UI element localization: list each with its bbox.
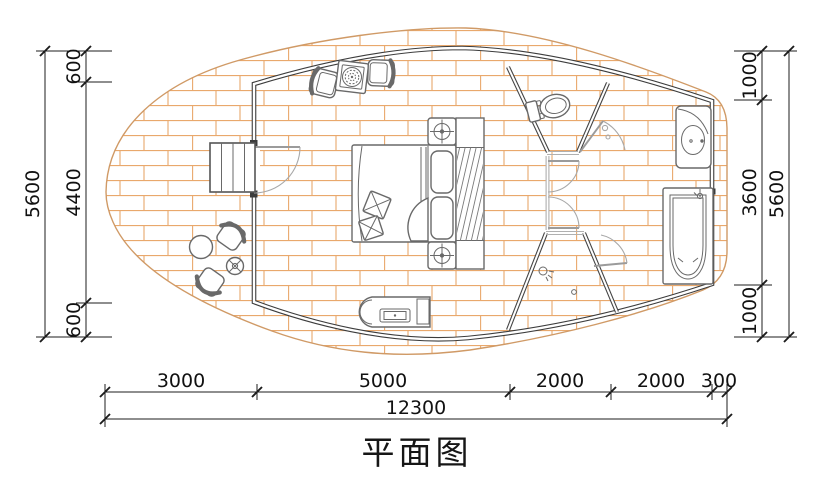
armchair-right xyxy=(368,60,395,87)
dim-label: 2000 xyxy=(637,370,685,392)
dim-label: 5000 xyxy=(359,370,407,392)
plan-title: 平面图 xyxy=(362,433,473,472)
dim-label: 3000 xyxy=(157,370,205,392)
dim-label: 600 xyxy=(63,302,85,338)
dim-label: 1000 xyxy=(739,51,761,99)
dim-label-overall: 5600 xyxy=(22,170,44,218)
bathtub xyxy=(663,188,713,284)
dim-label: 600 xyxy=(63,48,85,84)
dim-label: 4400 xyxy=(63,168,85,216)
sink-vanity xyxy=(676,106,711,168)
dim-label-overall: 5600 xyxy=(766,170,788,218)
pillow xyxy=(431,151,453,193)
dim-label: 1000 xyxy=(739,287,761,335)
dim-label: 300 xyxy=(701,370,737,392)
dim-label-overall: 12300 xyxy=(386,397,446,419)
dimension-right: 1000 3600 1000 5600 xyxy=(734,46,797,342)
dim-label: 3600 xyxy=(739,168,761,216)
outdoor-table xyxy=(190,236,213,259)
faucet xyxy=(700,139,703,142)
outdoor-stool xyxy=(227,258,244,275)
pillow xyxy=(431,197,453,239)
dimension-bottom: 3000 5000 2000 2000 300 12300 xyxy=(100,370,737,427)
entry-steps xyxy=(210,143,255,192)
armchair-left xyxy=(308,67,340,99)
dim-label: 2000 xyxy=(536,370,584,392)
dimension-left: 600 4400 600 5600 xyxy=(22,46,112,342)
floor-plan-canvas: 600 4400 600 5600 1000 3600 1000 5600 30… xyxy=(0,0,837,496)
fire-pit-table xyxy=(335,60,368,93)
tv-cabinet xyxy=(359,297,430,327)
floor-plan-drawing: 600 4400 600 5600 1000 3600 1000 5600 30… xyxy=(0,0,837,496)
